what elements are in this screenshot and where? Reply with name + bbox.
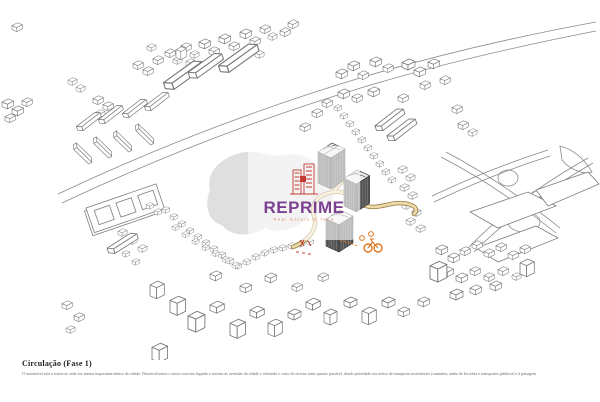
site-plan-drawing <box>0 0 600 360</box>
field-plots <box>470 172 599 262</box>
caption-title: Circulação (Fase 1) <box>22 359 582 368</box>
caption-body: O automóvel está a tornar-se cada vez me… <box>22 371 572 377</box>
caption-block: Circulação (Fase 1) O automóvel está a t… <box>22 359 582 383</box>
sheet: REPRIME Real Estate & Tech Circulação (F… <box>0 0 600 402</box>
courtyard-slab-block <box>84 184 166 236</box>
